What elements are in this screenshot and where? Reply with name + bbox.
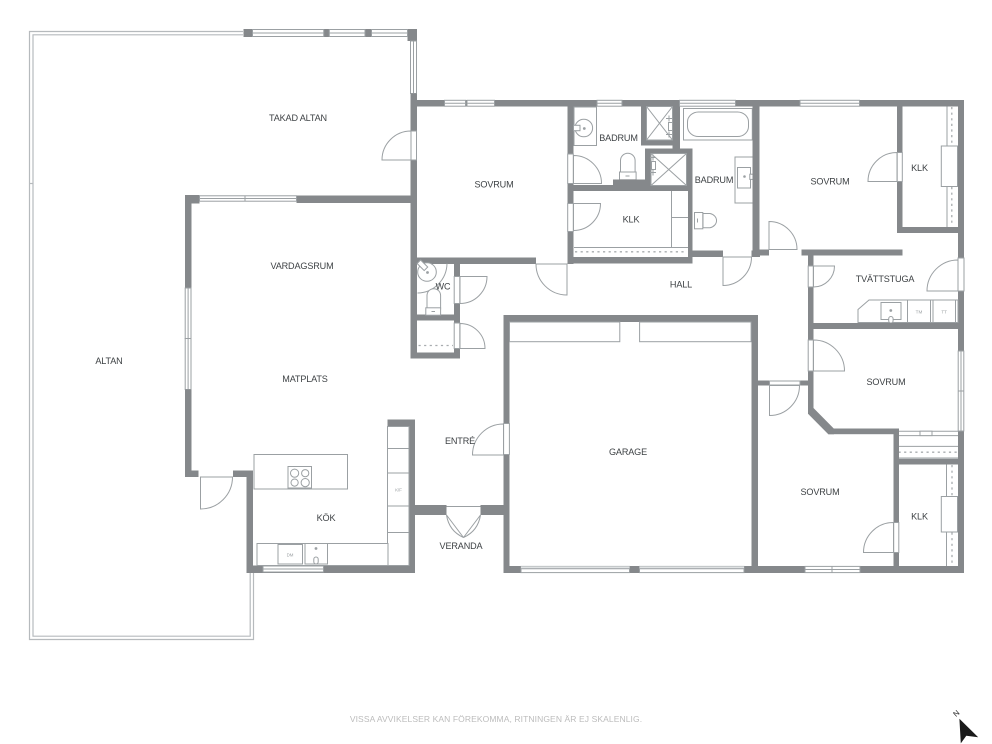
svg-text:TAKAD ALTAN: TAKAD ALTAN <box>269 113 327 123</box>
svg-text:ENTRÉ: ENTRÉ <box>445 436 475 446</box>
svg-text:KLK: KLK <box>623 215 640 225</box>
svg-text:SOVRUM: SOVRUM <box>810 177 849 187</box>
svg-text:GARAGE: GARAGE <box>609 447 647 457</box>
svg-text:HALL: HALL <box>670 280 692 290</box>
svg-text:KLK: KLK <box>911 512 928 522</box>
svg-text:SOVRUM: SOVRUM <box>474 180 513 190</box>
svg-text:MATPLATS: MATPLATS <box>282 374 328 384</box>
svg-text:TT: TT <box>941 310 947 315</box>
svg-text:SOVRUM: SOVRUM <box>800 487 839 497</box>
svg-text:ALTAN: ALTAN <box>95 356 122 366</box>
svg-text:SOVRUM: SOVRUM <box>866 377 905 387</box>
svg-text:DM: DM <box>287 553 294 558</box>
svg-text:K/F: K/F <box>395 488 402 493</box>
svg-text:WC: WC <box>436 282 451 292</box>
svg-text:BADRUM: BADRUM <box>695 175 734 185</box>
svg-text:BADRUM: BADRUM <box>599 133 638 143</box>
svg-text:TVÄTTSTUGA: TVÄTTSTUGA <box>856 274 916 284</box>
svg-text:VARDAGSRUM: VARDAGSRUM <box>270 261 333 271</box>
svg-text:TM: TM <box>916 310 923 315</box>
svg-text:KLK: KLK <box>911 163 928 173</box>
svg-text:KÖK: KÖK <box>317 513 336 523</box>
svg-text:VERANDA: VERANDA <box>440 541 484 551</box>
svg-text:VISSA AVVIKELSER KAN FÖREKOMMA: VISSA AVVIKELSER KAN FÖREKOMMA, RITNINGE… <box>350 714 642 724</box>
